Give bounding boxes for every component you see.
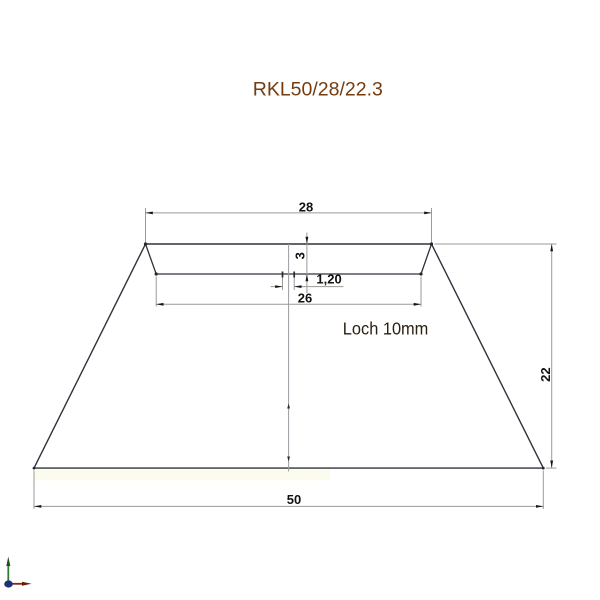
svg-text:28: 28 xyxy=(299,199,313,214)
svg-text:26: 26 xyxy=(298,290,312,305)
svg-text:Loch 10mm: Loch 10mm xyxy=(343,319,429,339)
svg-text:22: 22 xyxy=(538,367,553,381)
svg-text:3: 3 xyxy=(293,252,308,259)
svg-text:50: 50 xyxy=(287,492,301,507)
svg-text:RKL50/28/22.3: RKL50/28/22.3 xyxy=(253,79,383,101)
svg-text:1,20: 1,20 xyxy=(316,272,341,287)
